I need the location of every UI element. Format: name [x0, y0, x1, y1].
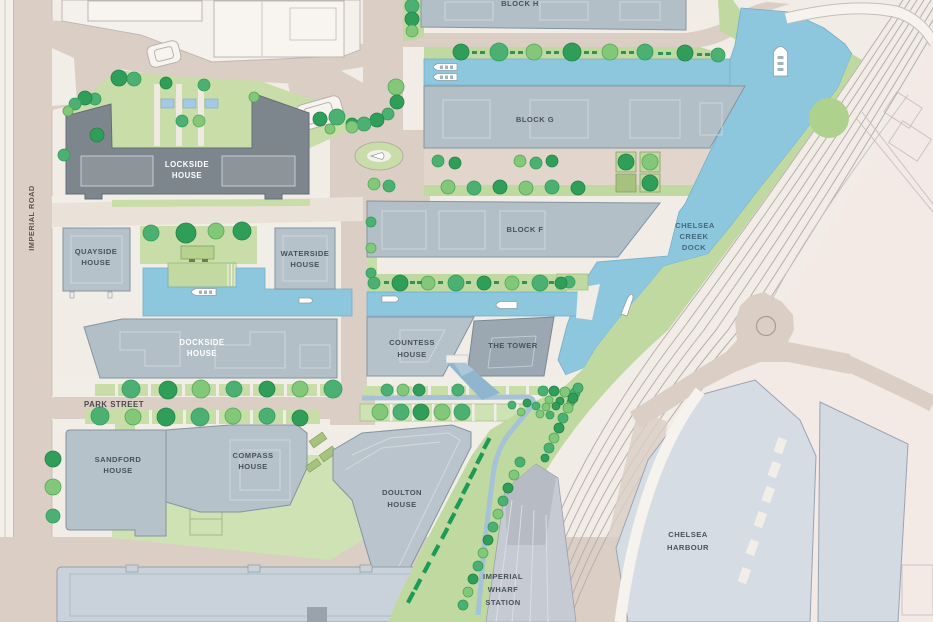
svg-text:HOUSE: HOUSE: [103, 466, 132, 475]
svg-text:THE TOWER: THE TOWER: [488, 341, 538, 350]
svg-text:HOUSE: HOUSE: [81, 258, 110, 267]
svg-text:IMPERIAL: IMPERIAL: [483, 572, 523, 581]
svg-text:BLOCK G: BLOCK G: [516, 115, 554, 124]
svg-text:DOCK: DOCK: [682, 243, 706, 252]
svg-text:HOUSE: HOUSE: [238, 462, 267, 471]
svg-text:CREEK: CREEK: [679, 232, 708, 241]
svg-text:DOULTON: DOULTON: [382, 488, 422, 497]
svg-text:PARK STREET: PARK STREET: [84, 400, 144, 409]
svg-text:WHARF: WHARF: [488, 585, 519, 594]
svg-text:QUAYSIDE: QUAYSIDE: [75, 247, 118, 256]
svg-text:CHELSEA: CHELSEA: [668, 530, 708, 539]
svg-text:BLOCK H: BLOCK H: [501, 0, 539, 8]
svg-text:HOUSE: HOUSE: [290, 260, 319, 269]
svg-text:IMPERIAL ROAD: IMPERIAL ROAD: [27, 185, 36, 251]
svg-text:COUNTESS: COUNTESS: [389, 338, 435, 347]
svg-text:BLOCK F: BLOCK F: [507, 225, 544, 234]
svg-text:WATERSIDE: WATERSIDE: [281, 249, 330, 258]
svg-text:LOCKSIDE: LOCKSIDE: [165, 160, 209, 169]
svg-text:HOUSE: HOUSE: [387, 500, 416, 509]
svg-text:CHELSEA: CHELSEA: [675, 221, 715, 230]
svg-text:SANDFORD: SANDFORD: [95, 455, 142, 464]
svg-text:COMPASS: COMPASS: [233, 451, 274, 460]
svg-text:HOUSE: HOUSE: [187, 349, 217, 358]
svg-text:STATION: STATION: [485, 598, 520, 607]
svg-text:HOUSE: HOUSE: [397, 350, 426, 359]
svg-text:HOUSE: HOUSE: [172, 171, 202, 180]
svg-text:DOCKSIDE: DOCKSIDE: [179, 338, 224, 347]
svg-text:HARBOUR: HARBOUR: [667, 543, 709, 552]
